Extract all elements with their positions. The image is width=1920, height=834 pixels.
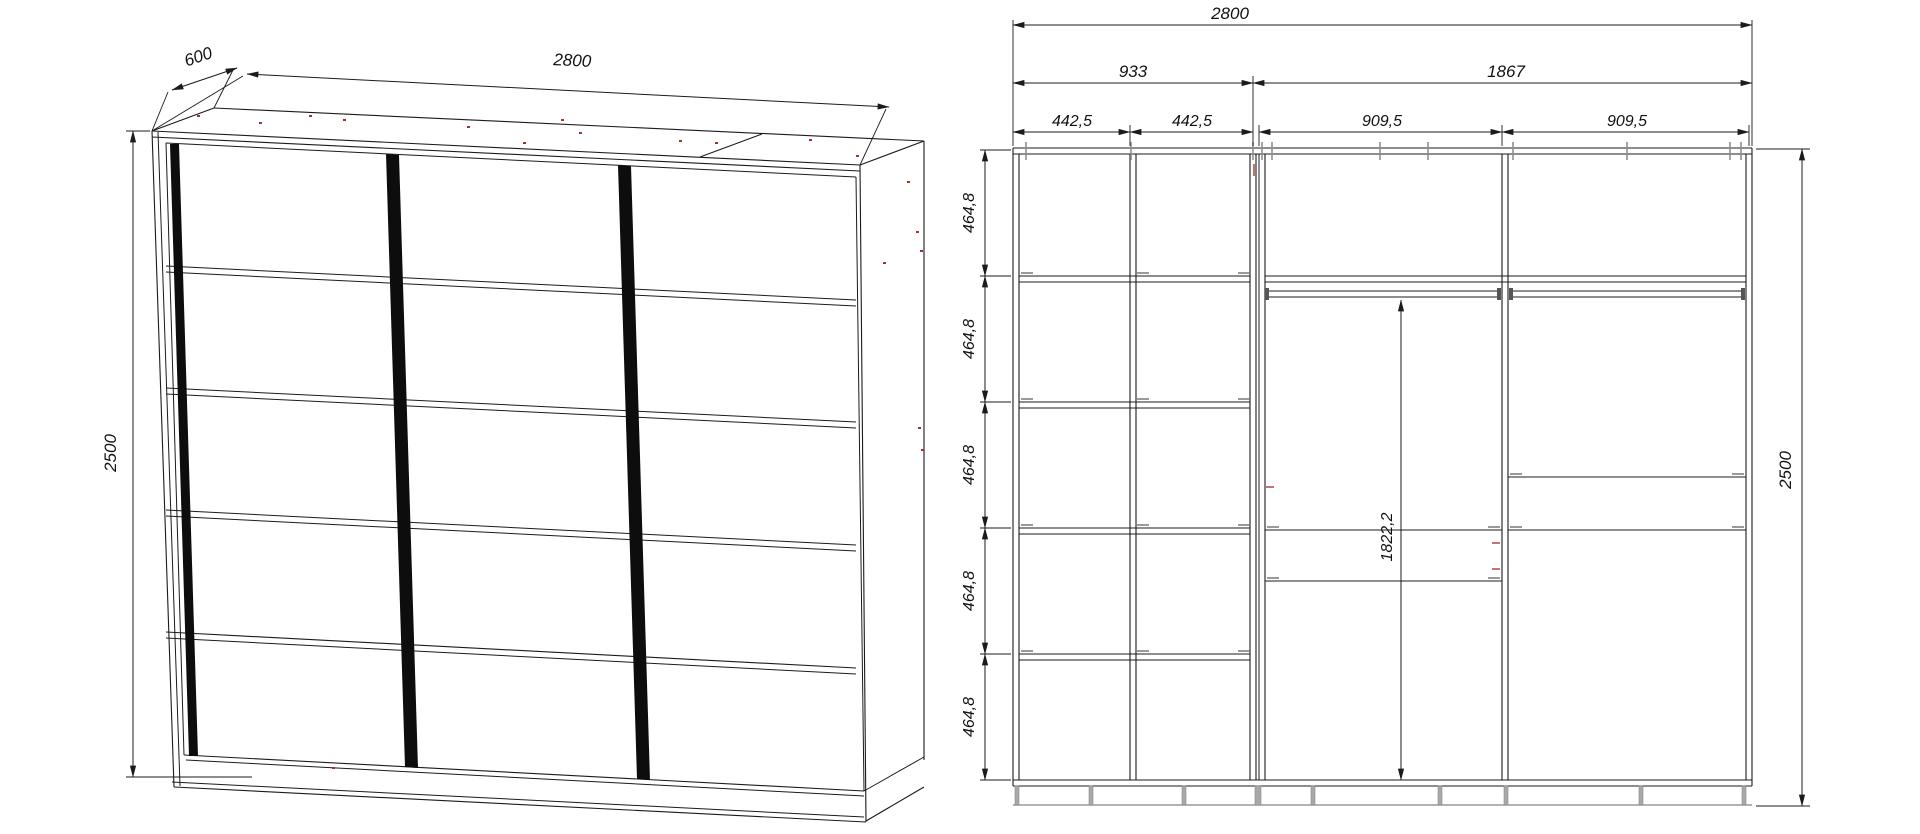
elevation-total-height-label: 2500 <box>1776 451 1795 490</box>
side-face-lines <box>864 141 924 821</box>
perspective-height-label: 2500 <box>101 434 120 473</box>
elevation-total-width-label: 2800 <box>1210 4 1249 23</box>
elevation-left-section-label: 933 <box>1119 62 1148 81</box>
assembly-dots <box>197 115 924 769</box>
top-face-lines <box>152 108 924 165</box>
right-section-shelves <box>1265 276 1746 581</box>
elevation-col-width-label-4: 909,5 <box>1607 113 1647 130</box>
door-stiles <box>170 144 650 780</box>
door-divider-lines <box>166 266 856 674</box>
elevation-col-width-label-1: 442,5 <box>1052 113 1092 130</box>
perspective-dimensions <box>126 68 889 777</box>
elevation-right-section-label: 1867 <box>1487 62 1525 81</box>
elevation-row-height-label-2: 464,8 <box>961 319 978 359</box>
elevation-row-height-label-1: 464,8 <box>961 193 978 233</box>
left-section-shelves <box>1019 276 1250 660</box>
plinth-lines <box>172 755 866 822</box>
elevation-row-height-label-4: 464,8 <box>961 571 978 611</box>
technical-drawing-canvas: 2800 600 2500 <box>0 0 1920 834</box>
perspective-width-label: 2800 <box>552 50 592 71</box>
plinth-and-legs <box>1013 786 1752 805</box>
carcass-lines <box>1013 148 1752 786</box>
elevation-col-width-label-3: 909,5 <box>1362 113 1402 130</box>
elevation-hanging-height-label: 1822,2 <box>1379 512 1396 561</box>
perspective-depth-label: 600 <box>182 43 216 70</box>
divider-lines <box>1130 154 1508 780</box>
elevation-view: 2800 933 1867 442,5 442,5 909,5 909,5 46… <box>961 4 1810 806</box>
elevation-dimensions <box>980 20 1810 806</box>
perspective-view: 2800 600 2500 <box>101 43 924 822</box>
front-frame-lines <box>152 131 866 822</box>
elevation-row-height-label-3: 464,8 <box>961 445 978 485</box>
elevation-col-width-label-2: 442,5 <box>1172 113 1212 130</box>
drawing-svg: 2800 600 2500 <box>0 0 1920 834</box>
elevation-row-height-label-5: 464,8 <box>961 697 978 737</box>
